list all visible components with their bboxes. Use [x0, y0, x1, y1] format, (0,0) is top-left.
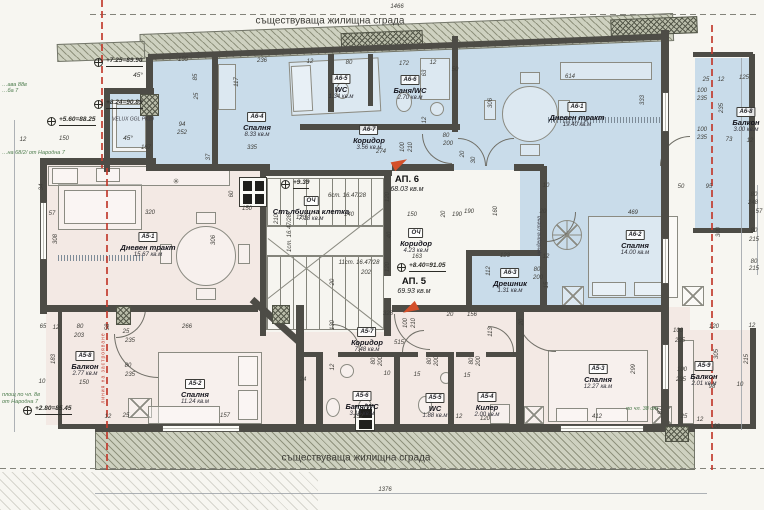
dim-label: 25	[123, 413, 130, 419]
room-area: 15.67 кв.м	[120, 252, 175, 259]
annotation-green: …на 68/2/ от Народна 7	[2, 151, 65, 157]
projection-dashline-bottom	[0, 468, 764, 469]
dim-label: 156	[467, 312, 477, 318]
room-area: 2.70 кв.м	[393, 95, 426, 102]
dim-label: 100	[697, 88, 707, 94]
wall	[400, 352, 418, 357]
room-code: А6-2	[625, 230, 644, 240]
dim-label: 12	[53, 325, 60, 331]
room-label-а5-9: А5-9Балкон2.01 кв.м	[690, 355, 717, 389]
room-name: WC	[328, 86, 353, 95]
wall	[296, 305, 304, 425]
dim-label: 12	[105, 414, 112, 420]
stair-run-label: 11ст. 16.47/28	[339, 260, 380, 266]
chair	[520, 72, 540, 84]
level-mark-symbol	[397, 263, 406, 272]
dim-label: 20	[540, 209, 547, 215]
dim-label: 123	[500, 253, 510, 259]
nightstand	[682, 286, 704, 306]
room-name: Коридор	[353, 137, 385, 146]
dim-label: 210	[411, 318, 417, 328]
dim-label: 12	[456, 414, 463, 420]
room-code: А5-2	[185, 379, 204, 389]
dim-label: 300	[716, 227, 722, 237]
room-code: А5-9	[694, 361, 713, 371]
room-name: Балкон	[71, 363, 98, 372]
dim-label: 80	[751, 259, 758, 265]
room-code: А6-4	[247, 112, 266, 122]
dim-label: 157	[220, 413, 230, 419]
floor-plan: съществуваща жилищна сграда съществуваща…	[0, 0, 764, 510]
room-label-а5-5: А5-5WC1.88 кв.м	[422, 387, 447, 421]
wall	[384, 298, 391, 336]
pillow	[592, 282, 626, 296]
wall	[394, 352, 400, 425]
dim-label: 15	[414, 372, 421, 378]
dim-label: 20	[441, 211, 447, 218]
dim-label: 125	[739, 75, 749, 81]
dim-label: 320	[145, 210, 155, 216]
room-area: 7.48 кв.м	[351, 347, 383, 354]
room-label-а6-3: А6-3Дрешник1.31 кв.м	[493, 262, 527, 296]
room-area: 1.34 кв.м	[328, 94, 353, 101]
dim-label: 202	[361, 270, 371, 276]
room-name: Баня/WC	[345, 403, 378, 412]
dim-label: 200	[533, 275, 543, 281]
room-label-оч: ОЧКоридор4.23 кв.м	[400, 222, 432, 256]
dim-label: 80	[371, 358, 377, 365]
room-name: WC	[422, 405, 447, 414]
projection-dashline-top	[90, 14, 756, 15]
room-code: А5-8	[75, 351, 94, 361]
dim-label: 117	[234, 77, 240, 87]
dim-label: 210	[408, 142, 414, 152]
room-code: А5-4	[477, 392, 496, 402]
room-name: Дневен тракт	[120, 244, 175, 253]
regulation-red-dashline	[106, 168, 108, 470]
dimension-line-left	[14, 120, 15, 432]
dim-label: 65	[40, 324, 47, 330]
room-label-а5-2: А5-2Спалня11.24 кв.м	[181, 373, 209, 407]
room-label-а5-6: А5-6Баня/WC3.10 кв.м	[345, 385, 378, 419]
wall	[58, 424, 98, 429]
dim-label: 57	[756, 209, 763, 215]
ground-hatch	[0, 472, 318, 510]
dim-label: 34	[39, 184, 45, 191]
annotation-deg: 45°	[133, 73, 143, 80]
dim-label: 24	[300, 377, 307, 383]
wall	[750, 328, 756, 426]
existing-building-label-bottom: съществуваща жилищна сграда	[282, 453, 431, 464]
annotation-tiny: щендерна стена	[538, 216, 543, 256]
dim-label: 12	[330, 364, 336, 371]
room-code: ОЧ	[303, 196, 318, 206]
dim-label: 614	[565, 74, 575, 80]
dim-label: 12	[20, 137, 27, 143]
level-mark-symbol	[94, 100, 103, 109]
washbasin	[430, 102, 444, 116]
flue	[243, 194, 252, 204]
dim-label: 20	[330, 279, 336, 286]
annotation-star: ✳	[173, 178, 180, 186]
dim-label: 87	[658, 408, 664, 415]
apartment-id: АП. 5	[397, 277, 430, 288]
room-name: Килер	[474, 404, 499, 413]
dim-label: 235	[697, 96, 707, 102]
dim-label: 328	[383, 311, 393, 317]
apartment-area: 68.03 кв.м	[390, 186, 423, 194]
dim-label: 150	[407, 212, 417, 218]
dim-label: 203	[74, 333, 84, 339]
wall	[486, 352, 518, 357]
room-area: 3.56 кв.м	[353, 145, 385, 152]
washbasin	[340, 364, 354, 378]
window	[662, 238, 669, 284]
level-mark: +8.24=90.89	[106, 100, 143, 109]
nightstand	[562, 286, 584, 306]
dim-label: 12	[307, 59, 314, 65]
dim-label: 10	[384, 371, 391, 377]
dim-label: 80	[751, 228, 758, 234]
room-area: 2.01 кв.м	[690, 381, 717, 388]
dim-label: 100	[673, 328, 683, 334]
dim-label: 167	[141, 145, 151, 151]
wall	[368, 54, 373, 106]
dim-label: 130	[330, 320, 336, 330]
regulation-red-dashline	[101, 0, 103, 168]
dim-label: 100	[403, 318, 409, 328]
apartment-area: 69.93 кв.м	[397, 288, 430, 296]
dim-label: 57	[49, 211, 56, 217]
masonry-block	[116, 306, 131, 325]
dim-label: 120	[385, 262, 391, 272]
chair	[520, 144, 540, 156]
existing-building-band-bottom	[95, 428, 695, 470]
annotation-green: …ба 7	[2, 89, 18, 95]
room-area: 3.00 кв.м	[732, 127, 759, 134]
dim-label: 335	[247, 145, 257, 151]
level-mark: +7.25=89.90	[106, 58, 143, 67]
dim-label: 25	[123, 329, 130, 335]
window	[162, 425, 240, 432]
wall	[448, 352, 454, 425]
dim-label: 235	[719, 103, 725, 113]
wall	[316, 352, 323, 425]
dim-label: 200	[434, 356, 440, 366]
room-area: 1.88 кв.м	[422, 413, 447, 420]
wall	[40, 305, 258, 312]
dim-label: 183	[51, 354, 57, 364]
annotation-tiny: VELUX GGL PK19	[112, 118, 154, 123]
dim-label: 15	[544, 282, 550, 289]
apartment-id: АП. 6	[390, 175, 423, 186]
dim-label: 80	[346, 60, 353, 66]
wall	[693, 228, 753, 233]
dim-label: 160	[493, 206, 499, 216]
dim-label: 15	[464, 373, 471, 379]
dim-label: 200	[378, 356, 384, 366]
room-label-а5-4: А5-4Килер2.00 кв.м	[474, 386, 499, 420]
chimney-block	[239, 177, 267, 207]
annotation-deg: 45°	[123, 136, 133, 143]
wall	[466, 250, 472, 307]
chair	[196, 288, 216, 300]
dim-label: 37	[206, 154, 212, 161]
dim-label: 172	[399, 61, 409, 67]
room-code: А6-7	[359, 125, 378, 135]
dim-label: 80	[751, 192, 758, 198]
room-name: Спалня	[584, 376, 612, 385]
flue	[359, 420, 372, 429]
dim-label: 299	[631, 364, 637, 374]
dim-label: 94	[179, 122, 186, 128]
room-label-а6-2: А6-2Спалня14.00 кв.м	[621, 224, 649, 258]
flue	[243, 181, 252, 191]
dim-label: 215	[744, 354, 750, 364]
room-area: 4.23 кв.м	[400, 248, 432, 255]
dim-label: 80	[443, 133, 450, 139]
dim-label: 215	[749, 266, 759, 272]
room-name: Баня/WC	[393, 87, 426, 96]
room-code: А5-5	[425, 393, 444, 403]
wall	[212, 57, 218, 167]
annotation-green: площ по чл. 8в	[2, 393, 40, 399]
balcony-bench	[148, 406, 220, 424]
level-mark: +8.40=91.05	[409, 263, 446, 272]
wall	[40, 158, 156, 165]
level-mark: +2.80=85.45	[35, 406, 72, 415]
nightstand	[524, 406, 544, 424]
dim-label: 80	[469, 358, 475, 365]
dim-label: 252	[177, 130, 187, 136]
wall	[452, 36, 458, 132]
dim-label: 200	[476, 356, 482, 366]
room-area: 3.10 кв.м	[345, 411, 378, 418]
room-code: А6-8	[736, 107, 755, 117]
dim-label: 80	[125, 363, 132, 369]
room-label-а5-3: А5-3Спалня12.27 кв.м	[584, 358, 612, 392]
room-name: Коридор	[400, 240, 432, 249]
room-area: 7.18 кв.м	[273, 216, 349, 223]
room-label-а6-4: А6-4Спалня8.33 кв.м	[243, 106, 271, 140]
room-label-а6-1: А6-1Дневен тракт19.40 кв.м	[549, 96, 604, 130]
window	[662, 92, 669, 132]
dim-label: 85	[193, 74, 199, 81]
dim-label: 236	[257, 58, 267, 64]
masonry-block	[665, 426, 689, 442]
dim-label: 215	[749, 237, 759, 243]
pillow	[556, 408, 588, 422]
dim-label: 40	[387, 232, 393, 239]
room-label-а5-7: А5-7Коридор7.48 кв.м	[351, 321, 383, 355]
dim-label: 100	[400, 142, 406, 152]
dim-label: 80	[77, 324, 84, 330]
dim-label: 113	[488, 327, 494, 337]
dim-label: 10	[737, 382, 744, 388]
dim-label: 306	[488, 98, 494, 108]
dim-label: 10	[39, 379, 46, 385]
dim-label: 1376	[378, 487, 391, 493]
room-label-а6-5: А6-5WC1.34 кв.м	[328, 68, 353, 102]
room-area: 12.27 кв.м	[584, 384, 612, 391]
room-code: ОЧ	[408, 228, 423, 238]
dim-label: 112	[486, 266, 492, 276]
dim-label: 50	[452, 67, 459, 73]
room-area: 1.31 кв.м	[493, 288, 527, 295]
toilet	[326, 398, 340, 417]
dim-label: 412	[592, 414, 602, 420]
dim-label: 20	[447, 312, 454, 318]
dim-label: 73	[726, 137, 733, 143]
level-mark-symbol	[23, 406, 32, 415]
chair	[238, 244, 250, 264]
room-name: Дрешник	[493, 280, 527, 289]
annotation-green: по чл. 38 от	[626, 407, 658, 413]
room-code: А6-6	[400, 75, 419, 85]
room-label-а5-1: А5-1Дневен тракт15.67 кв.м	[120, 226, 175, 260]
dim-label: 308	[53, 234, 59, 244]
pillow	[291, 65, 313, 112]
room-name: Балкон	[690, 373, 717, 382]
room-area: 8.33 кв.м	[243, 132, 271, 139]
dimension-line-bottom	[95, 493, 707, 494]
window	[560, 425, 644, 432]
dim-label: 30	[471, 157, 477, 164]
dim-label: 235	[125, 372, 135, 378]
room-code: А6-3	[500, 268, 519, 278]
stove	[52, 168, 78, 184]
room-code: А5-3	[588, 364, 607, 374]
dim-label: 515	[394, 340, 404, 346]
dim-label: 108	[710, 424, 720, 430]
room-area: 2.00 кв.м	[474, 412, 499, 419]
room-label-а6-8: А6-8Балкон3.00 кв.м	[732, 101, 759, 135]
dim-label: 306	[211, 235, 217, 245]
dim-label: 20	[519, 319, 525, 326]
dim-label: 12	[718, 77, 725, 83]
dim-label: 150	[242, 206, 252, 212]
dim-label: 469	[628, 210, 638, 216]
dim-label: 235	[676, 377, 686, 383]
dim-label: 150	[59, 136, 69, 142]
level-mark-symbol	[281, 180, 290, 189]
window	[662, 344, 669, 390]
dim-label: 333	[640, 95, 646, 105]
flue	[255, 194, 264, 204]
dim-label: 235	[675, 338, 685, 344]
room-name: Балкон	[732, 119, 759, 128]
room-name: Спалня	[181, 391, 209, 400]
pillow	[238, 390, 258, 420]
dim-label: 60	[229, 191, 235, 198]
room-name: Стълбищна клетка	[273, 208, 349, 217]
room-area: 14.00 кв.м	[621, 250, 649, 257]
room-name: Спалня	[243, 124, 271, 133]
room-area: 19.40 кв.м	[549, 122, 604, 129]
dim-label: 12	[697, 417, 704, 423]
regulation-red-dashline	[711, 25, 713, 470]
dim-label: 200	[443, 141, 453, 147]
room-code: А5-7	[357, 327, 376, 337]
room-code: А5-1	[138, 232, 157, 242]
annotation-redtxt: линия на застрояване	[102, 332, 107, 403]
dim-label: 25	[681, 414, 688, 420]
dim-label: 25	[703, 77, 710, 83]
dim-label: 100	[697, 127, 707, 133]
wall	[146, 164, 270, 171]
dim-label: 10	[543, 183, 550, 189]
dim-label: 20	[460, 151, 466, 158]
level-mark: +9.39	[293, 180, 309, 189]
apartment-label: АП. 569.93 кв.м	[397, 277, 430, 296]
dim-label: 266	[182, 324, 192, 330]
dim-label: 80	[534, 267, 541, 273]
apartment-label: АП. 668.03 кв.м	[390, 175, 423, 194]
room-code: А6-1	[567, 102, 586, 112]
room-name: Дневен тракт	[549, 114, 604, 123]
level-mark-symbol	[47, 117, 56, 126]
room-area: 2.77 кв.м	[71, 371, 98, 378]
sofa-inner	[64, 190, 136, 224]
dim-label: 235	[697, 135, 707, 141]
wall	[300, 352, 320, 357]
dim-label: 12	[749, 323, 756, 329]
dim-label: 50	[678, 184, 685, 190]
room-name: Спалня	[621, 242, 649, 251]
chair	[196, 212, 216, 224]
existing-building-label-top: съществуваща жилищна сграда	[256, 16, 405, 27]
dim-label: 25	[194, 93, 200, 100]
dim-label: 80	[427, 358, 433, 365]
room-label-а6-7: А6-7Коридор3.56 кв.м	[353, 119, 385, 153]
dim-label: 248	[748, 200, 758, 206]
dim-label: 1466	[390, 4, 403, 10]
window	[40, 202, 47, 260]
dim-label: 235	[125, 338, 135, 344]
dim-label: 95	[706, 184, 713, 190]
masonry-block	[272, 305, 290, 324]
dim-label: 12	[747, 138, 754, 144]
dim-label: 190	[464, 209, 474, 215]
wall	[392, 305, 664, 312]
zone-balcony-a6-8	[695, 58, 751, 230]
room-area: 11.24 кв.м	[181, 399, 209, 406]
room-label-а6-6: А6-6Баня/WC2.70 кв.м	[393, 69, 426, 103]
dim-label: 100	[677, 367, 687, 373]
room-label-оч: ОЧСтълбищна клетка7.18 кв.м	[273, 190, 349, 224]
annotation-green: от Народна 7	[2, 400, 38, 406]
flue	[255, 181, 264, 191]
room-code: А5-6	[352, 391, 371, 401]
dim-label: 120	[709, 324, 719, 330]
room-name: Коридор	[351, 339, 383, 348]
wardrobe	[218, 64, 236, 110]
dim-label: 58	[105, 324, 111, 331]
level-mark-symbol	[94, 58, 103, 67]
dim-label: 12	[422, 117, 428, 124]
dim-label: 150	[79, 380, 89, 386]
room-label-а5-8: А5-8Балкон2.77 кв.м	[71, 345, 98, 379]
dim-label: 190	[452, 212, 462, 218]
wall	[456, 352, 474, 357]
level-mark: +5.60=88.25	[59, 117, 96, 126]
wall	[260, 170, 392, 176]
dim-label: 155	[178, 57, 188, 63]
pillow	[238, 356, 258, 386]
dim-label: 12	[430, 60, 437, 66]
wall	[693, 52, 753, 57]
dining-table	[176, 226, 236, 286]
